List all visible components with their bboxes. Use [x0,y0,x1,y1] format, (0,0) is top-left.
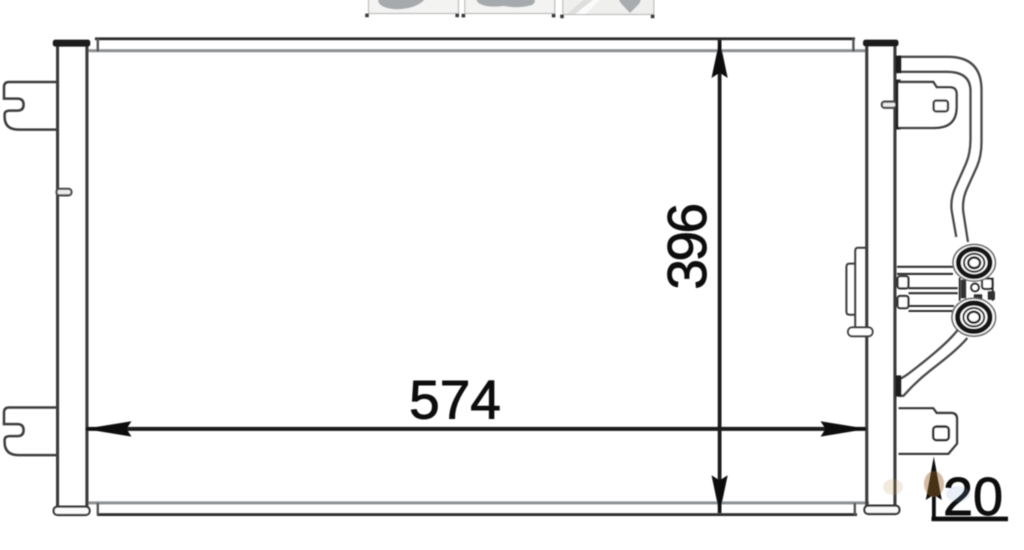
svg-text:574: 574 [409,369,501,431]
svg-text:396: 396 [656,204,718,289]
